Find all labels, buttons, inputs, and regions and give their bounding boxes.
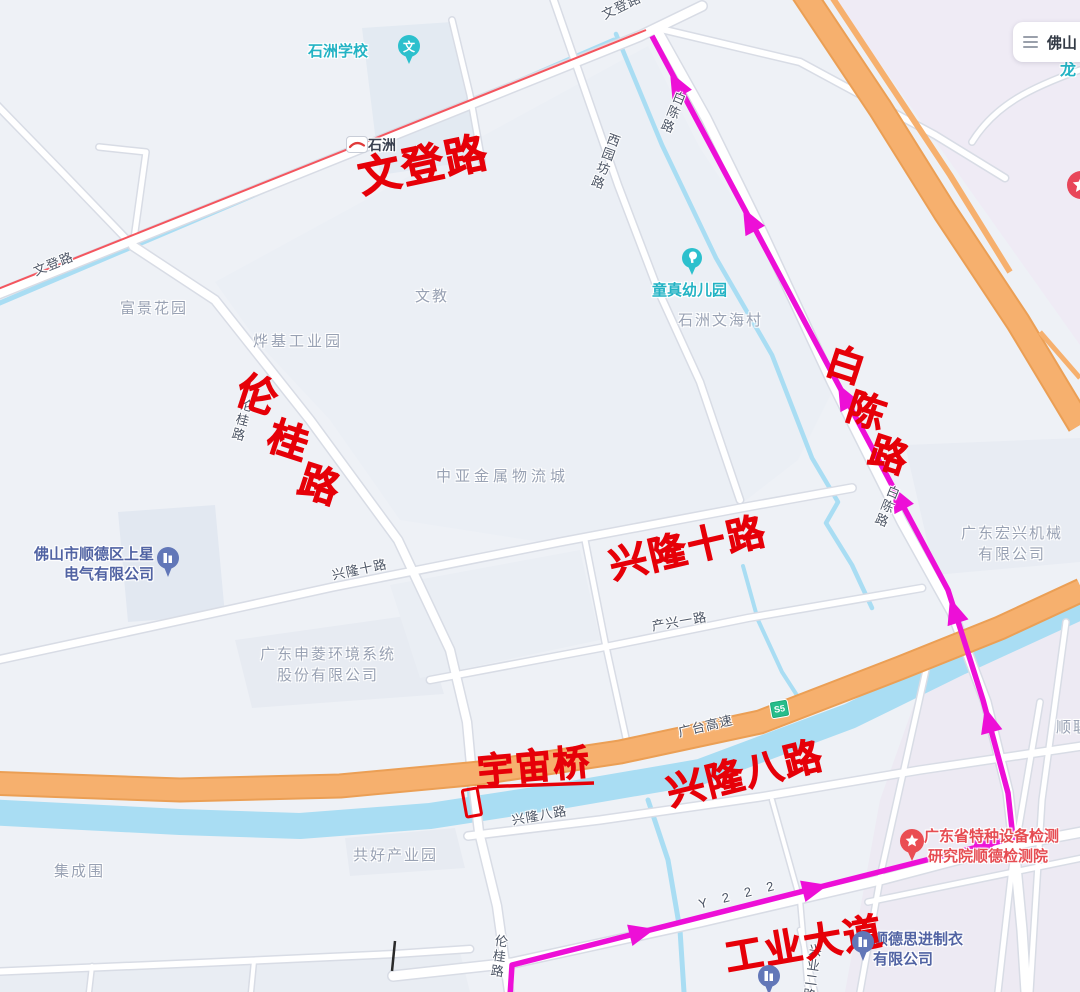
poi-label-shangxing-1[interactable]: 佛山市顺德区上星	[18, 543, 154, 564]
map-viewport[interactable]: 文登路 文登路 西园坊路 白陈路 白陈路 兴隆十路 产兴一路 广台高速 兴隆八路…	[0, 0, 1080, 992]
search-city-label[interactable]: 佛山	[1047, 32, 1077, 53]
search-box[interactable]: 佛山	[1013, 22, 1080, 62]
area-label-yeji: 烨基工业园	[253, 330, 343, 351]
school-pin-icon[interactable]: 文	[396, 34, 422, 66]
school-glyph: 文	[403, 39, 416, 54]
area-label-hongxing-1: 广东宏兴机械	[946, 522, 1078, 543]
area-label-shenling-1: 广东申菱环境系统	[238, 643, 418, 664]
sijin-pin-icon[interactable]	[851, 930, 875, 962]
area-label-zhongya: 中亚金属物流城	[436, 465, 569, 486]
poi-label-sijin-1[interactable]: 顺德思进制衣	[873, 928, 963, 949]
company-pin-icon-partial[interactable]	[757, 964, 781, 992]
inspection-star-pin-icon[interactable]	[899, 828, 925, 862]
poi-label-shangxing-2[interactable]: 电气有限公司	[18, 563, 154, 584]
menu-icon[interactable]	[1023, 36, 1038, 48]
shangxing-pin-icon[interactable]	[156, 546, 180, 578]
poi-label-shizhou-school[interactable]: 石洲学校	[308, 40, 368, 61]
area-label-shunlian: 顺联	[1056, 716, 1080, 737]
station-bridge-icon[interactable]	[346, 136, 368, 153]
area-label-jicheng: 集成围	[54, 860, 105, 881]
poi-label-tejian-2[interactable]: 研究院顺德检测院	[928, 845, 1048, 866]
area-label-hongxing-2: 有限公司	[946, 543, 1078, 564]
poi-label-tongzhen[interactable]: 童真幼儿园	[652, 279, 727, 300]
poi-circle-star-icon[interactable]	[1064, 168, 1080, 202]
area-label-fujing: 富景花园	[120, 297, 188, 318]
area-label-shizhou-wenhai: 石洲文海村	[678, 309, 763, 330]
kindergarten-pin-icon[interactable]	[680, 247, 704, 277]
area-label-wenjiao: 文教	[415, 285, 449, 306]
expressway-badge: S5	[769, 698, 791, 719]
poi-label-tejian-1[interactable]: 广东省特种设备检测	[924, 825, 1059, 846]
area-label-gonghao: 共好产业园	[353, 844, 438, 865]
annotation-yuzhou-bridge: 宇宙桥	[475, 733, 593, 795]
area-label-shenling-2: 股份有限公司	[238, 664, 418, 685]
